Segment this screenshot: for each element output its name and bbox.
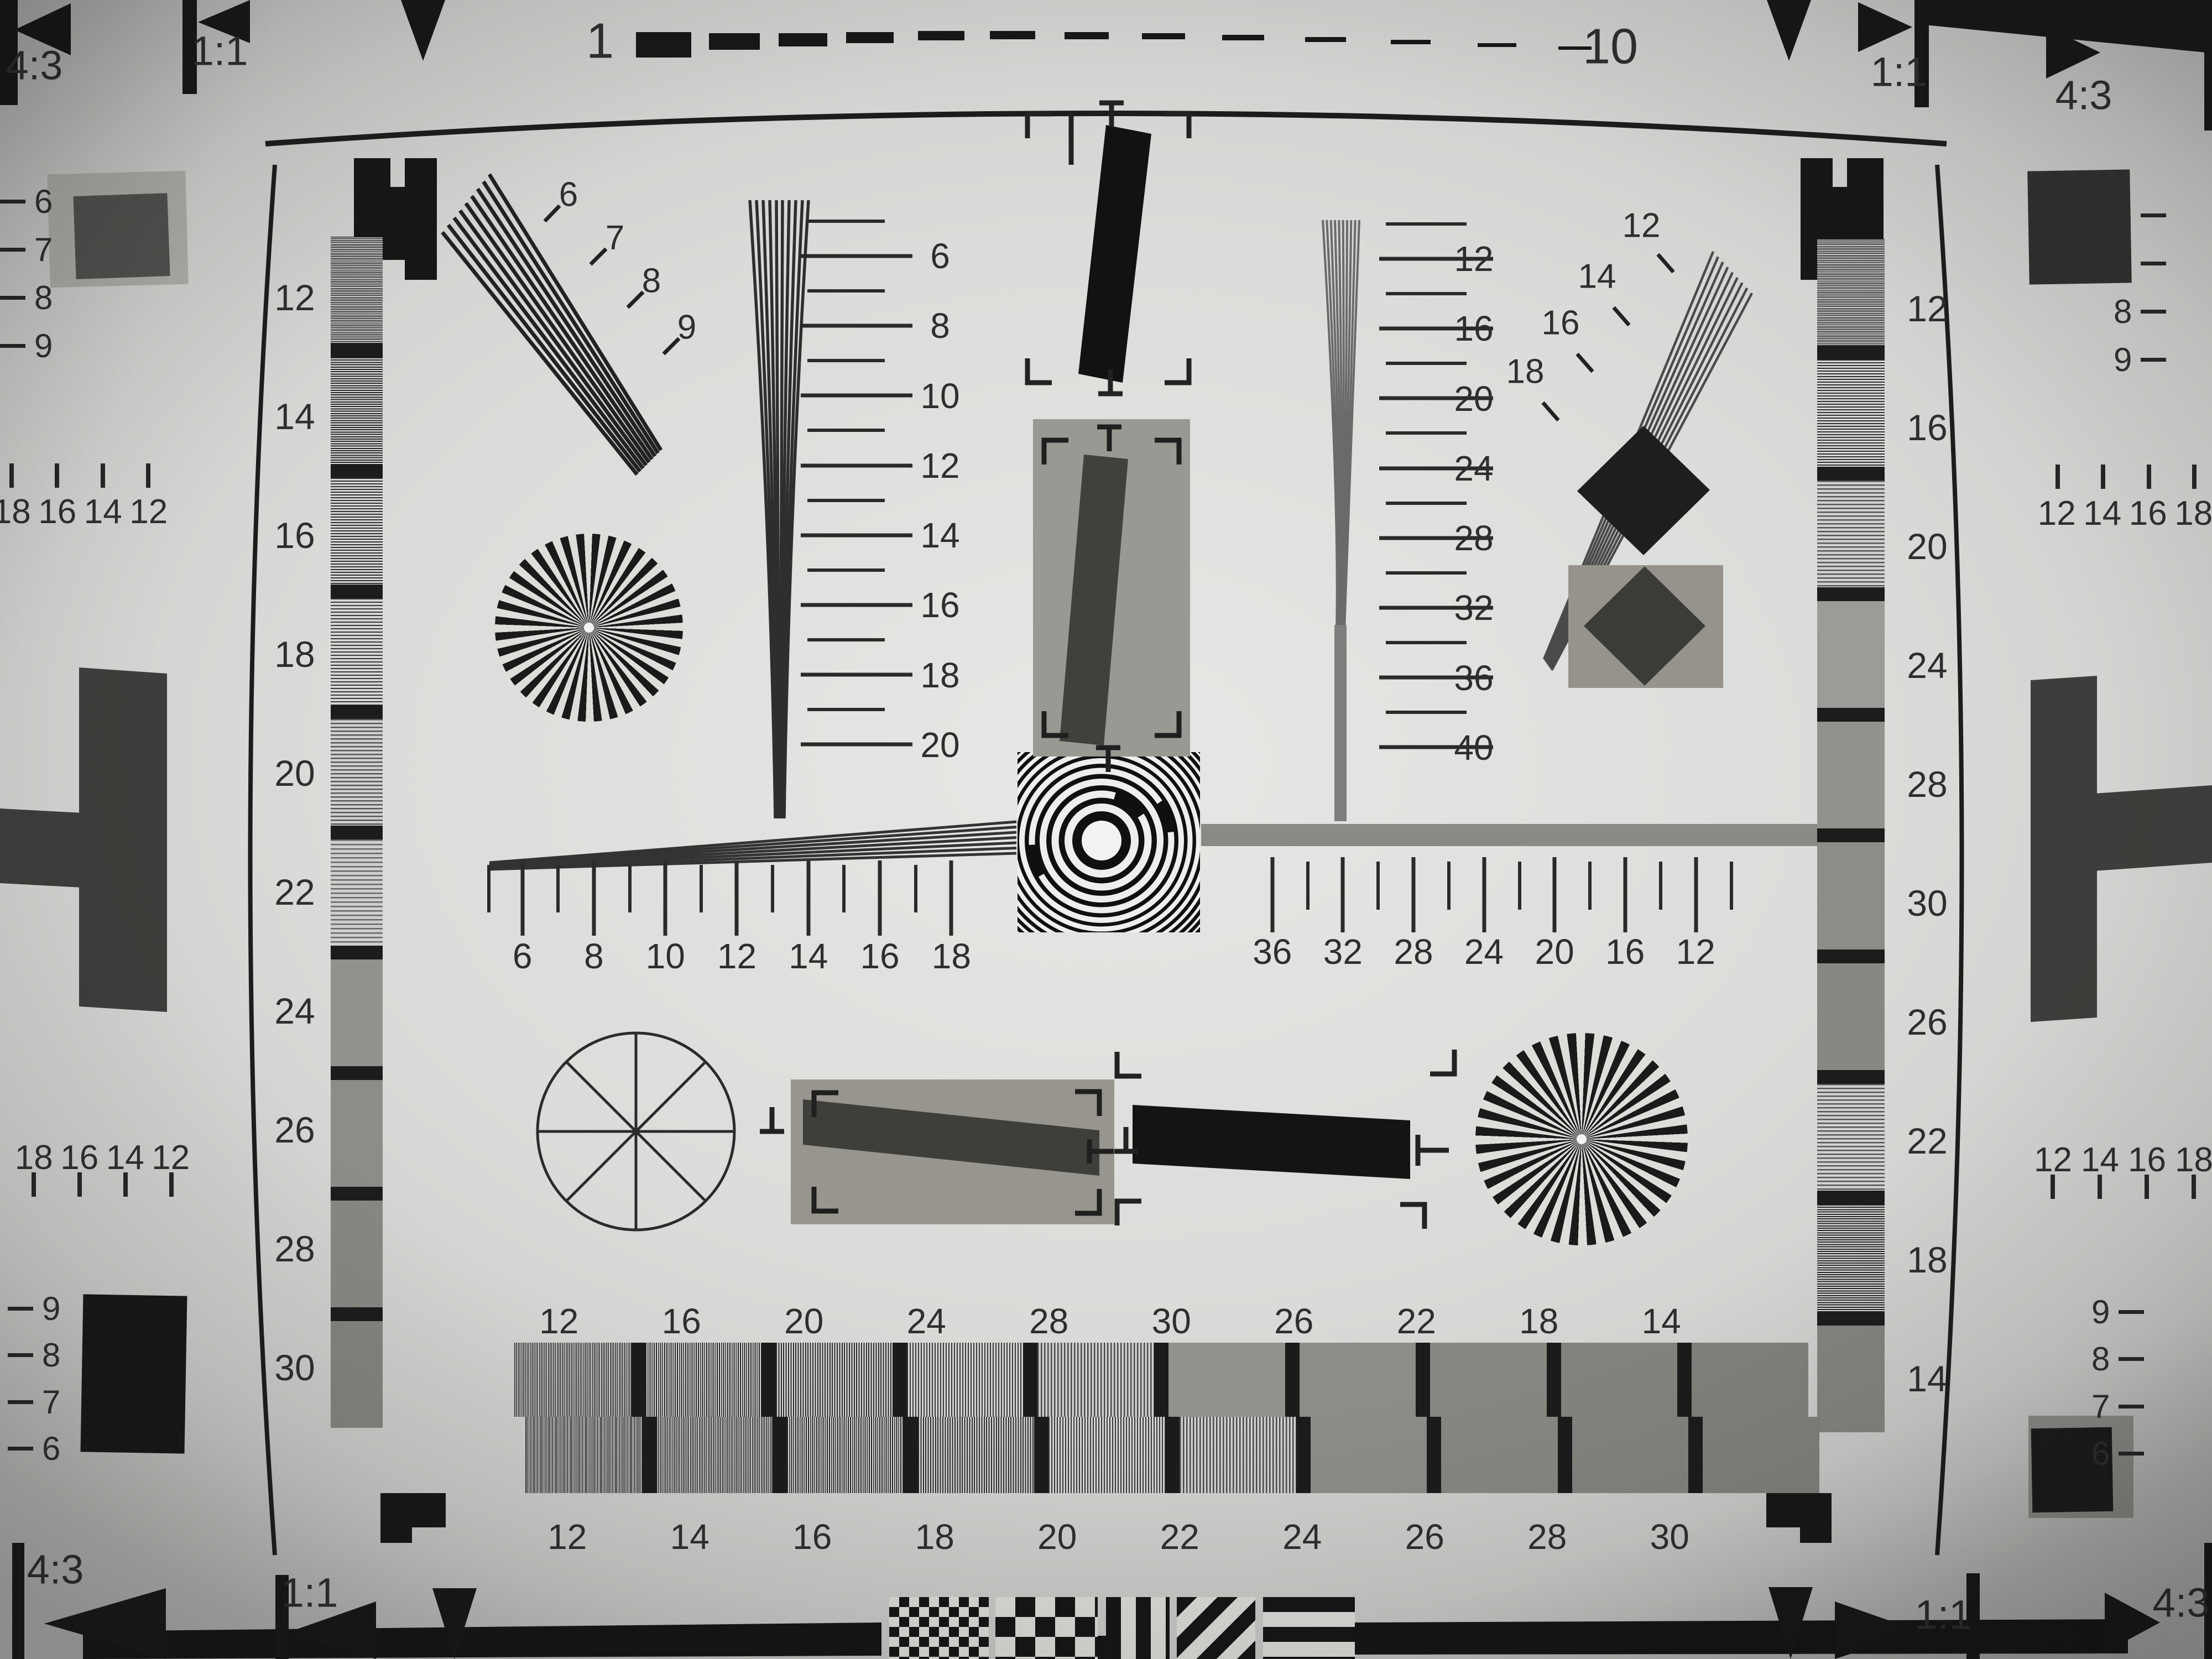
edge-number-row: 7 — [0, 231, 111, 269]
square-label-top-right: 1:1 — [1871, 49, 1928, 96]
top-ruler-start: 1 — [586, 13, 614, 70]
fan-number: 7 — [606, 218, 624, 258]
tick-number: 14 — [2077, 1140, 2124, 1180]
tick-dash — [0, 248, 25, 252]
aspect-label-top-left: 4:3 — [6, 42, 63, 89]
edge-number: 7 — [2091, 1387, 2110, 1426]
tick-dash — [2119, 1310, 2144, 1314]
edge-number-row: 9 — [8, 1290, 118, 1328]
grayscale-step-wedge-left — [331, 237, 383, 1428]
edge-number: 6 — [42, 1430, 60, 1468]
grayscale-number: 14 — [1894, 1319, 1960, 1438]
tick-number: 16 — [35, 492, 81, 531]
tick-dash — [8, 1307, 33, 1311]
scale-number: 6 — [487, 936, 558, 977]
square-label-bottom-right: 1:1 — [1915, 1592, 1972, 1639]
scale-number: 14 — [907, 500, 973, 570]
star-center-dot — [1577, 1134, 1587, 1144]
right-edge-top-numbers: 6789 — [2114, 196, 2212, 379]
grayscale-number: 12 — [264, 238, 325, 357]
siemens-star-right — [1475, 1033, 1688, 1245]
scale-number: 12 — [701, 936, 773, 977]
tick-dash — [0, 200, 25, 204]
tick-number: 18 — [2171, 494, 2212, 533]
scale-number: 36 — [1237, 931, 1308, 972]
tick-number: 16 — [2124, 1140, 2171, 1180]
edge-number: 7 — [42, 1383, 60, 1421]
wedge-number: 20 — [996, 1516, 1119, 1557]
left-edge-bottom-numbers: 9876 — [8, 1290, 118, 1468]
tick-dash — [2141, 310, 2166, 314]
edge-number: 9 — [2114, 341, 2132, 379]
grayscale-number: 26 — [264, 1070, 325, 1189]
edge-number-row: 6 — [2114, 196, 2212, 234]
right-edge-lower-tick-numbers: 12141618 — [2030, 1140, 2212, 1180]
scale-number: 32 — [1432, 573, 1515, 643]
wedge-number: 28 — [988, 1301, 1110, 1342]
aspect-label-bottom-right: 4:3 — [2153, 1579, 2210, 1626]
wedge-number: 16 — [751, 1516, 874, 1557]
bottom-wedge-lower-labels: 12141618202224262830 — [506, 1516, 1731, 1557]
grayscale-number: 20 — [1894, 487, 1960, 606]
tick-number: 16 — [57, 1138, 103, 1177]
tick-number: 14 — [2080, 494, 2126, 533]
grayscale-number: 16 — [264, 476, 325, 594]
edge-number-row: 8 — [8, 1336, 118, 1374]
tick-dash — [2141, 213, 2166, 217]
wedge-number: 24 — [865, 1301, 988, 1342]
scale-number: 18 — [916, 936, 987, 977]
top-ruler-end: 10 — [1583, 19, 1638, 76]
tick-dash — [2119, 1357, 2144, 1361]
scale-number: 18 — [907, 640, 973, 710]
edge-number-row: 6 — [2091, 1434, 2190, 1473]
right-edge-upper-tick-numbers: 12141618 — [2034, 494, 2212, 533]
wedge-number: 18 — [1478, 1301, 1600, 1342]
edge-number-row: 6 — [0, 182, 111, 221]
edge-number: 6 — [2091, 1434, 2110, 1473]
fan-number: 9 — [677, 308, 696, 347]
grayscale-number: 18 — [264, 594, 325, 713]
scale-number: 16 — [1590, 931, 1661, 972]
checkerboard-coarse — [995, 1597, 1098, 1659]
iso12233-resolution-test-chart: 4:3 1:1 1:1 4:3 4:3 1:1 1:1 4:3 1 10 678… — [0, 0, 2212, 1659]
wedge-number: 20 — [743, 1301, 865, 1342]
wedge-number: 24 — [1241, 1516, 1364, 1557]
edge-number: 7 — [2114, 244, 2132, 283]
edge-number-row: 7 — [2114, 244, 2212, 283]
edge-number-row: 9 — [2114, 341, 2212, 379]
wedge-number: 14 — [1600, 1301, 1723, 1342]
left-edge-upper-tick-numbers: 18161412 — [0, 492, 171, 531]
scale-number: 16 — [1432, 294, 1515, 363]
scale-number: 10 — [630, 936, 701, 977]
tick-dash — [2119, 1405, 2144, 1408]
left-edge-top-numbers: 6789 — [0, 182, 111, 365]
wedge-scale-left-numbers: 68101214161820 — [907, 221, 973, 780]
grayscale-number: 30 — [1894, 843, 1960, 962]
edge-number-row: 8 — [0, 279, 111, 317]
grayscale-number: 30 — [264, 1308, 325, 1427]
grayscale-number: 24 — [264, 951, 325, 1070]
bottom-step-wedge-upper — [514, 1343, 1808, 1417]
tick-dash — [2119, 1452, 2144, 1455]
wedge-number: 28 — [1486, 1516, 1609, 1557]
scale-number: 28 — [1432, 503, 1515, 573]
scale-number: 20 — [1519, 931, 1590, 972]
tick-dash — [0, 344, 25, 348]
scale-number: 24 — [1432, 434, 1515, 503]
aspect-label-top-right: 4:3 — [2056, 72, 2112, 119]
edge-number-row: 6 — [8, 1430, 118, 1468]
grayscale-number: 28 — [1894, 724, 1960, 843]
edge-number: 8 — [2114, 293, 2132, 331]
square-label-bottom-left: 1:1 — [281, 1569, 338, 1616]
scale-number: 8 — [907, 291, 973, 361]
tick-number: 16 — [2125, 494, 2171, 533]
edge-number: 9 — [42, 1290, 60, 1328]
tick-dash — [8, 1400, 33, 1404]
bottom-step-wedge-lower — [525, 1417, 1819, 1493]
wedge-number: 22 — [1119, 1516, 1241, 1557]
scale-number: 16 — [907, 570, 973, 640]
edge-number-row: 7 — [2091, 1387, 2190, 1426]
scale-number: 12 — [1660, 931, 1731, 972]
edge-number-row: 9 — [2091, 1293, 2190, 1331]
scale-number: 16 — [844, 936, 915, 977]
square-label-top-left: 1:1 — [191, 28, 248, 75]
fan-number: 12 — [1623, 206, 1661, 246]
edge-number: 9 — [34, 327, 53, 365]
wedge-number: 12 — [506, 1516, 629, 1557]
fan-number: 16 — [1542, 304, 1580, 343]
scale-number: 36 — [1432, 643, 1515, 713]
grayscale-left-numbers: 12141618202224262830 — [264, 238, 325, 1427]
scale-number: 32 — [1308, 931, 1379, 972]
scale-number: 20 — [1432, 364, 1515, 434]
tick-number: 18 — [11, 1138, 57, 1177]
edge-number-row: 8 — [2091, 1340, 2190, 1378]
scale-number: 20 — [907, 710, 973, 780]
grayscale-number: 20 — [264, 713, 325, 832]
grayscale-step-wedge-right — [1817, 239, 1885, 1432]
grayscale-number: 22 — [1894, 1081, 1960, 1200]
scale-number: 24 — [1449, 931, 1520, 972]
scale-number: 10 — [907, 361, 973, 431]
scale-number: 28 — [1378, 931, 1449, 972]
siemens-star-left — [495, 534, 683, 722]
wedge-number: 26 — [1364, 1516, 1486, 1557]
grayscale-number: 22 — [264, 832, 325, 951]
tick-dash — [2141, 358, 2166, 362]
grayscale-number: 12 — [1894, 249, 1960, 368]
left-edge-lower-tick-numbers: 18161412 — [11, 1138, 194, 1177]
tick-dash — [0, 296, 25, 300]
scale-number: 6 — [907, 221, 973, 291]
tick-dash — [8, 1447, 33, 1451]
grayscale-right-numbers: 12162024283026221814 — [1894, 249, 1960, 1438]
tick-number: 14 — [102, 1138, 148, 1177]
scale-number: 14 — [773, 936, 844, 977]
scale-number: 40 — [1432, 713, 1515, 782]
star-center-dot — [584, 623, 594, 633]
edge-number: 6 — [2114, 196, 2132, 234]
wedge-number: 30 — [1609, 1516, 1731, 1557]
tick-number: 18 — [2171, 1140, 2212, 1180]
wedge-number: 14 — [629, 1516, 752, 1557]
grayscale-number: 18 — [1894, 1200, 1960, 1319]
grayscale-number: 28 — [264, 1189, 325, 1308]
tick-number: 14 — [80, 492, 126, 531]
scale-number: 12 — [907, 431, 973, 500]
wedge-number: 12 — [498, 1301, 620, 1342]
fan-number: 14 — [1578, 257, 1616, 296]
edge-number-row: 7 — [8, 1383, 118, 1421]
right-edge-bottom-numbers: 9876 — [2091, 1293, 2190, 1473]
fan-number: 6 — [559, 175, 578, 215]
horizontal-scale-right-numbers: 36322824201612 — [1237, 931, 1731, 972]
bottom-wedge-upper-labels: 12162024283026221814 — [498, 1301, 1723, 1342]
tick-number: 12 — [126, 492, 172, 531]
tick-number: 12 — [2030, 1140, 2077, 1180]
edge-number-row: 9 — [0, 327, 111, 365]
wedge-number: 26 — [1233, 1301, 1355, 1342]
checkerboard-fine — [889, 1597, 989, 1659]
scale-number: 12 — [1432, 224, 1515, 294]
fan-number: 8 — [642, 262, 661, 301]
aspect-label-bottom-left: 4:3 — [27, 1546, 84, 1593]
scale-number: 8 — [558, 936, 629, 977]
grayscale-number: 26 — [1894, 962, 1960, 1081]
grayscale-number: 14 — [264, 357, 325, 476]
edge-number: 9 — [2091, 1293, 2110, 1331]
tick-dash — [2141, 262, 2166, 265]
tick-dash — [8, 1353, 33, 1357]
grayscale-number: 24 — [1894, 606, 1960, 724]
wedge-number: 22 — [1355, 1301, 1478, 1342]
grayscale-number: 16 — [1894, 368, 1960, 487]
tick-number: 18 — [0, 492, 35, 531]
edge-number: 6 — [34, 182, 53, 221]
edge-number: 8 — [34, 279, 53, 317]
diagonal-stripes-pattern — [1177, 1597, 1255, 1659]
bottom-pattern-strip — [889, 1597, 1365, 1659]
edge-number-row: 8 — [2114, 293, 2212, 331]
wedge-number: 16 — [620, 1301, 743, 1342]
wedge-number: 30 — [1110, 1301, 1233, 1342]
edge-number: 7 — [34, 231, 53, 269]
horizontal-scale-left-numbers: 681012141618 — [487, 936, 987, 977]
tick-number: 12 — [2034, 494, 2080, 533]
horizontal-bars-pattern — [1263, 1597, 1355, 1659]
vertical-bars-pattern — [1106, 1597, 1170, 1659]
edge-number: 8 — [42, 1336, 60, 1374]
wedge-scale-right-numbers: 1216202428323640 — [1432, 224, 1515, 782]
edge-number: 8 — [2091, 1340, 2110, 1378]
tick-number: 12 — [148, 1138, 194, 1177]
wedge-number: 18 — [874, 1516, 997, 1557]
